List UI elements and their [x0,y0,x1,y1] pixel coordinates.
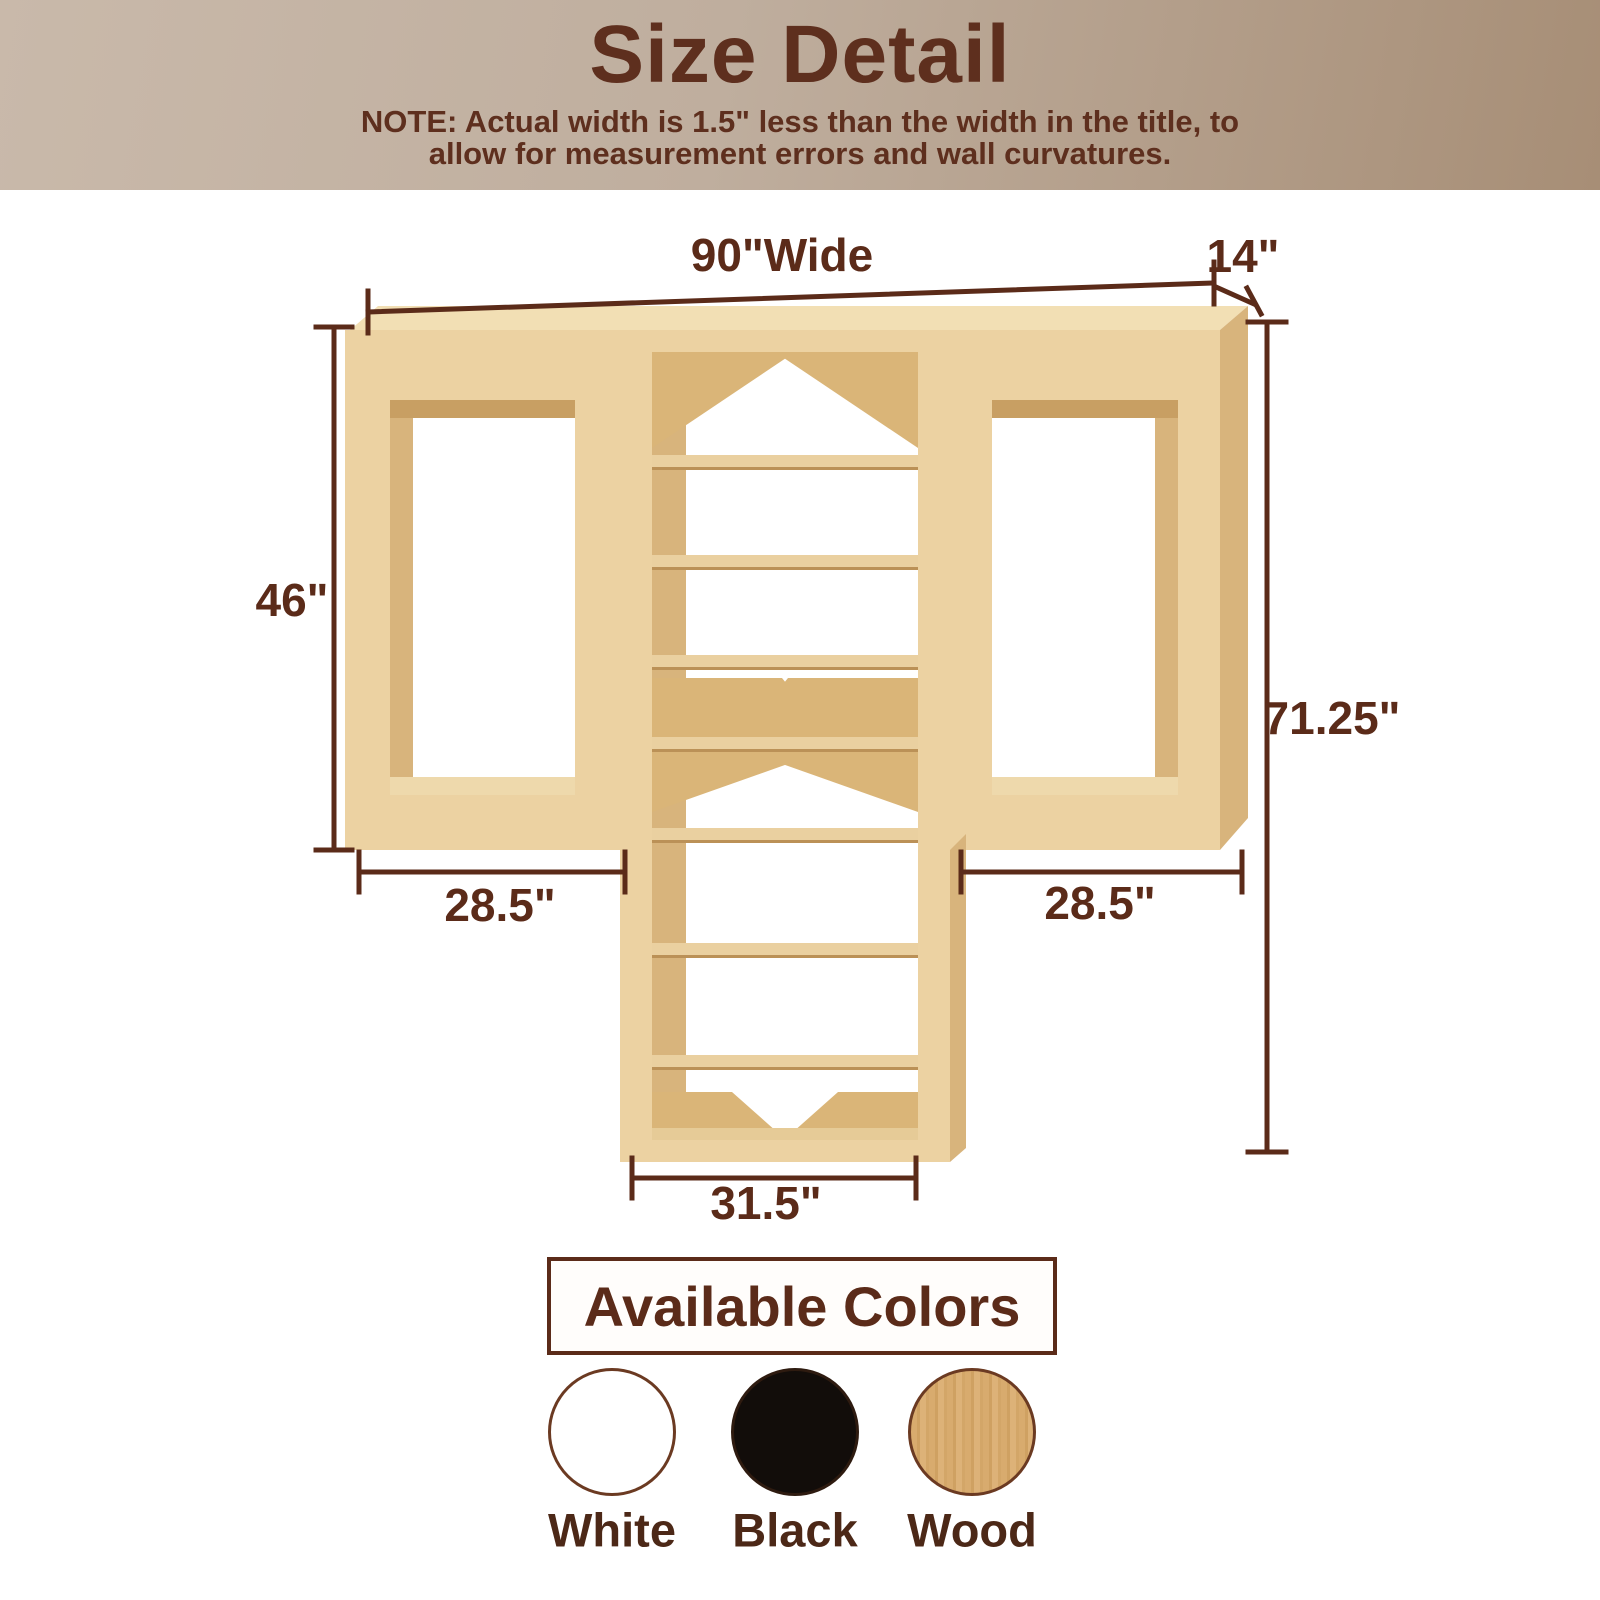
size-detail-page: Size Detail NOTE: Actual width is 1.5" l… [0,0,1600,1600]
tower-brace [775,352,918,448]
closet-illustration [345,306,1248,1162]
color-swatch-white [548,1368,676,1496]
right-side-panel [1220,306,1248,850]
dim-label-width-total: 90"Wide [691,228,873,282]
dim-label-total-height: 71.25" [1264,691,1401,745]
color-swatch-black [731,1368,859,1496]
swatch-label-black: Black [732,1503,857,1558]
dim-label-right-width: 28.5" [1044,876,1155,930]
right-hanging-frame [950,330,1220,850]
available-colors-title: Available Colors [584,1274,1021,1339]
swatch-label-white: White [548,1503,676,1558]
color-swatch-wood [908,1368,1036,1496]
center-shelf-tower [620,330,966,1162]
dim-label-left-height: 46" [256,573,329,627]
dim-label-left-width: 28.5" [444,878,555,932]
swatch-label-wood: Wood [907,1503,1037,1558]
available-colors-box: Available Colors [547,1257,1057,1355]
left-hanging-frame [345,330,620,850]
dim-label-tower-width: 31.5" [710,1176,821,1230]
dim-label-depth: 14" [1207,229,1280,283]
